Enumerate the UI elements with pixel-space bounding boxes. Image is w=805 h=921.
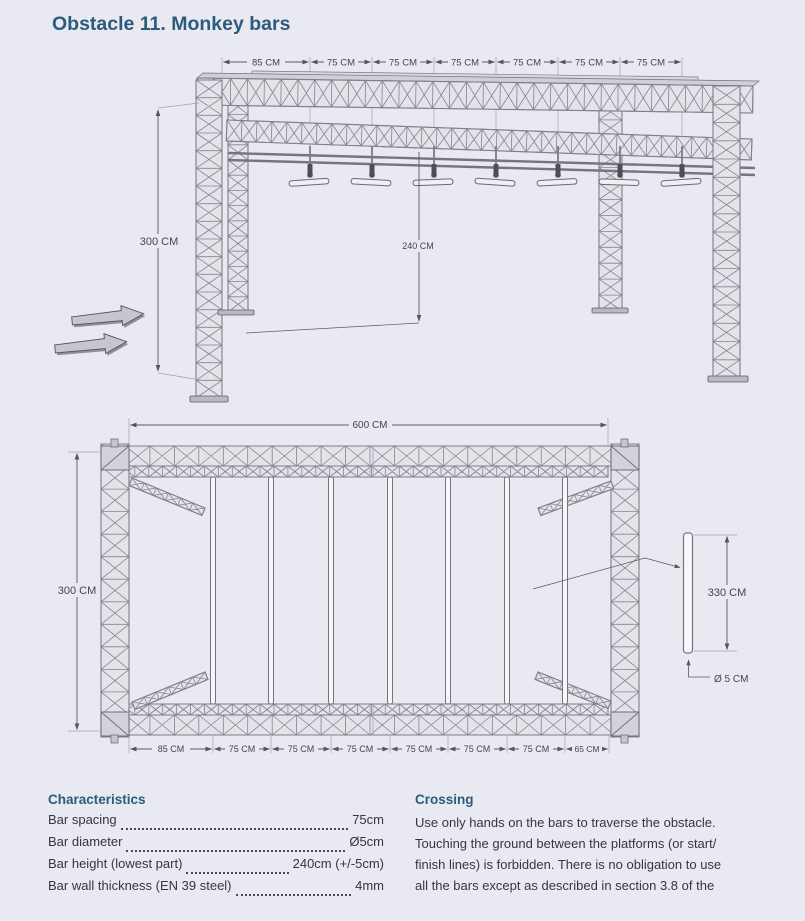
top-dimension-row: 85 CM 75 CM 75 CM 75 CM 75 CM 75 CM 75 C… xyxy=(224,56,681,69)
monkey-bar xyxy=(475,178,515,186)
dimension-depth-300: 300 CM xyxy=(55,452,100,731)
bar-clamp xyxy=(308,164,313,177)
monkey-bar-plan xyxy=(329,477,334,704)
clearance-label: 240 CM xyxy=(402,241,434,251)
bar-clamp xyxy=(432,164,437,177)
post-stub xyxy=(621,735,628,743)
post-stub xyxy=(111,439,118,447)
monkey-bar xyxy=(289,178,329,186)
base-plate xyxy=(592,308,628,313)
depth-label: 300 CM xyxy=(58,585,97,597)
isometric-view: 300 CM 240 CM xyxy=(54,56,759,402)
monkey-bar-plan xyxy=(269,477,274,704)
corner-brace xyxy=(535,672,611,708)
bottom-dimension-row: 85 CM 75 CM 75 CM 75 CM 75 CM 75 CM 75 C… xyxy=(129,736,609,754)
dotted-leader xyxy=(236,894,352,896)
corner-brace xyxy=(538,481,614,516)
spec-row: Bar diameter Ø5cm xyxy=(48,834,384,856)
monkey-bar-plan xyxy=(446,477,451,704)
bar-clamp xyxy=(370,164,375,177)
monkey-bar-plan xyxy=(563,477,568,704)
direction-arrow-icon xyxy=(71,304,146,333)
direction-arrow-icon xyxy=(54,332,129,361)
spec-row: Bar wall thickness (EN 39 steel) 4mm xyxy=(48,878,384,900)
dim-label: 85 CM xyxy=(252,58,280,69)
crossing-section: Crossing Use only hands on the bars to t… xyxy=(415,792,767,896)
crossing-heading: Crossing xyxy=(415,792,767,807)
bar-clamp xyxy=(494,164,499,177)
dimension-clearance-240: 240 CM xyxy=(246,152,439,333)
direction-arrows xyxy=(54,304,146,361)
crossing-text-line: Use only hands on the bars to traverse t… xyxy=(415,812,767,833)
dimension-width-600: 600 CM xyxy=(129,417,608,446)
dim-label: 75 CM xyxy=(513,58,541,69)
dim-label: 65 CM xyxy=(574,744,599,754)
corner-brace-lattice xyxy=(535,672,611,708)
spec-value: 4mm xyxy=(355,878,384,893)
post-stub xyxy=(621,439,628,447)
spec-value: 240cm (+/-5cm) xyxy=(293,856,384,871)
single-bar-detail xyxy=(684,533,693,653)
corner-brace-lattice xyxy=(129,478,205,515)
characteristics-heading: Characteristics xyxy=(48,792,384,807)
bar-diameter-label: Ø 5 CM xyxy=(714,674,748,685)
characteristics-section: Characteristics Bar spacing 75cm Bar dia… xyxy=(48,792,384,900)
height-label: 300 CM xyxy=(140,236,179,248)
right-front-column xyxy=(713,86,740,378)
plan-left-truss xyxy=(101,444,129,737)
plan-right-truss xyxy=(611,444,639,737)
monkey-bar-plan xyxy=(211,477,216,704)
dim-label: 75 CM xyxy=(637,58,665,69)
width-label: 600 CM xyxy=(352,420,387,431)
base-plate xyxy=(218,310,254,315)
bar-clamp xyxy=(680,164,685,177)
plan-view: 600 CM xyxy=(55,417,750,754)
technical-drawing-canvas: 300 CM 240 CM xyxy=(0,0,805,921)
dim-label: 75 CM xyxy=(523,744,550,754)
dim-label: 75 CM xyxy=(406,744,433,754)
base-plate xyxy=(190,396,228,402)
dim-label: 75 CM xyxy=(327,58,355,69)
monkey-bar xyxy=(599,179,639,186)
post-stub xyxy=(111,735,118,743)
monkey-bar xyxy=(661,178,701,186)
bar-clamp xyxy=(618,164,623,177)
monkey-bar xyxy=(537,179,577,187)
dotted-leader xyxy=(126,850,345,852)
spec-value: 75cm xyxy=(352,812,384,827)
dotted-leader xyxy=(121,828,349,830)
bar-clamp xyxy=(556,164,561,177)
right-back-column xyxy=(599,88,622,311)
spec-value: Ø5cm xyxy=(349,834,384,849)
bar-rail-back xyxy=(228,160,755,175)
crossing-text-line: Touching the ground between the platform… xyxy=(415,833,767,854)
monkey-bars-plan xyxy=(211,477,568,704)
document-page: Obstacle 11. Monkey bars xyxy=(0,0,805,921)
left-back-column xyxy=(228,84,248,312)
spec-row: Bar height (lowest part) 240cm (+/-5cm) xyxy=(48,856,384,878)
monkey-bar-plan xyxy=(388,477,393,704)
spec-row: Bar spacing 75cm xyxy=(48,812,384,834)
plan-bottom-subbeam xyxy=(107,704,608,715)
plan-top-subbeam xyxy=(107,466,608,477)
spec-label: Bar diameter xyxy=(48,834,122,849)
dim-label: 75 CM xyxy=(451,58,479,69)
corner-brace xyxy=(129,478,205,515)
dim-label: 75 CM xyxy=(347,744,374,754)
dotted-leader xyxy=(186,872,288,874)
dim-label: 75 CM xyxy=(288,744,315,754)
dim-label: 85 CM xyxy=(158,744,185,754)
dim-label: 75 CM xyxy=(389,58,417,69)
base-plate xyxy=(708,376,748,382)
bar-length-label: 330 CM xyxy=(708,587,747,599)
left-front-column xyxy=(196,80,222,398)
crossing-text-line: all the bars except as described in sect… xyxy=(415,875,767,896)
dim-label: 75 CM xyxy=(464,744,491,754)
spec-label: Bar wall thickness (EN 39 steel) xyxy=(48,878,232,893)
crossing-text-line: finish lines) is forbidden. There is no … xyxy=(415,854,767,875)
corner-brace-lattice xyxy=(538,481,614,516)
spec-label: Bar spacing xyxy=(48,812,117,827)
spec-label: Bar height (lowest part) xyxy=(48,856,182,871)
dim-label: 75 CM xyxy=(575,58,603,69)
monkey-bar-plan xyxy=(505,477,510,704)
monkey-bar xyxy=(351,178,391,186)
dim-label: 75 CM xyxy=(229,744,256,754)
